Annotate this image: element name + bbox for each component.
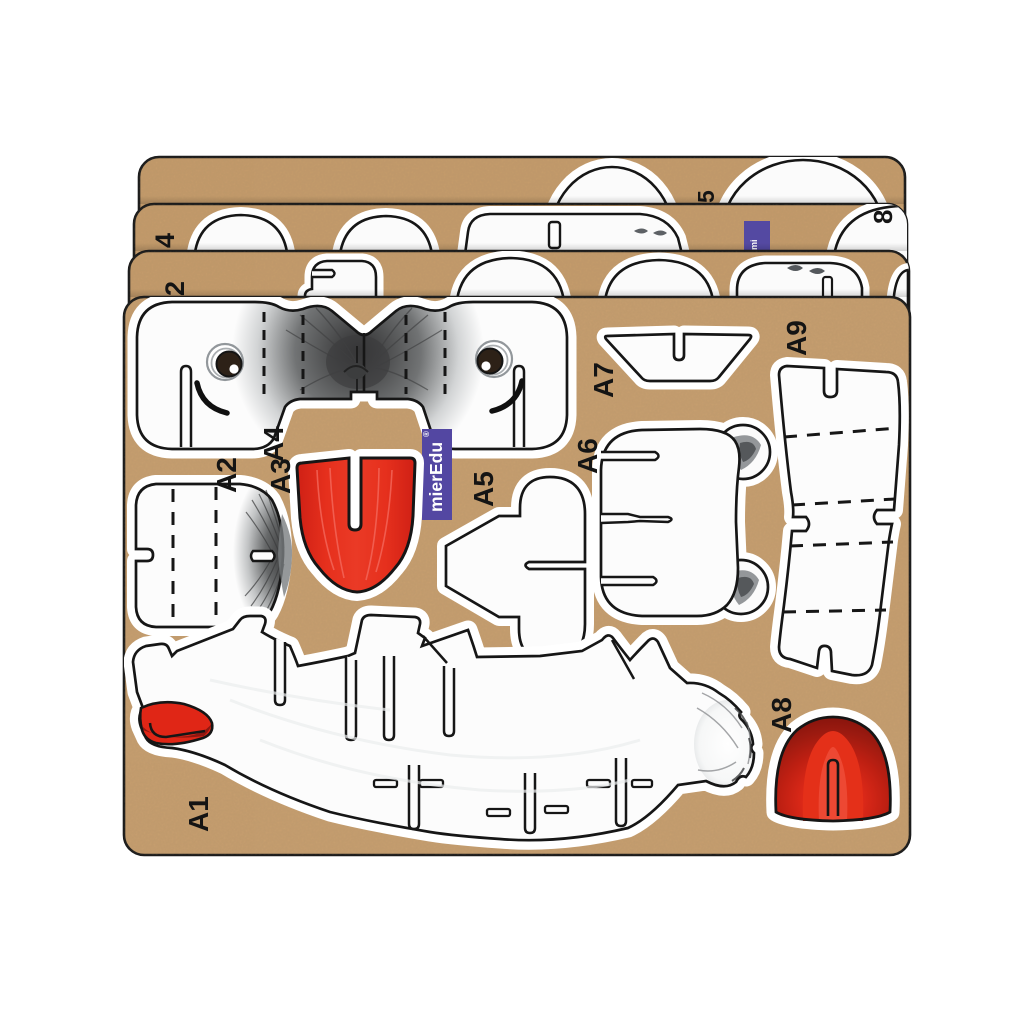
svg-text:A4: A4: [258, 426, 289, 462]
svg-text:A3: A3: [265, 458, 296, 494]
svg-text:A2: A2: [211, 457, 242, 493]
svg-text:A5: A5: [468, 471, 499, 507]
svg-text:8: 8: [868, 210, 898, 224]
svg-text:A9: A9: [781, 320, 812, 356]
svg-text:mierEdu: mierEdu: [426, 442, 446, 512]
svg-text:A6: A6: [572, 438, 603, 474]
svg-text:A8: A8: [766, 697, 797, 733]
svg-text:®: ®: [422, 431, 431, 437]
svg-text:A1: A1: [183, 796, 214, 832]
svg-text:A7: A7: [588, 362, 619, 398]
